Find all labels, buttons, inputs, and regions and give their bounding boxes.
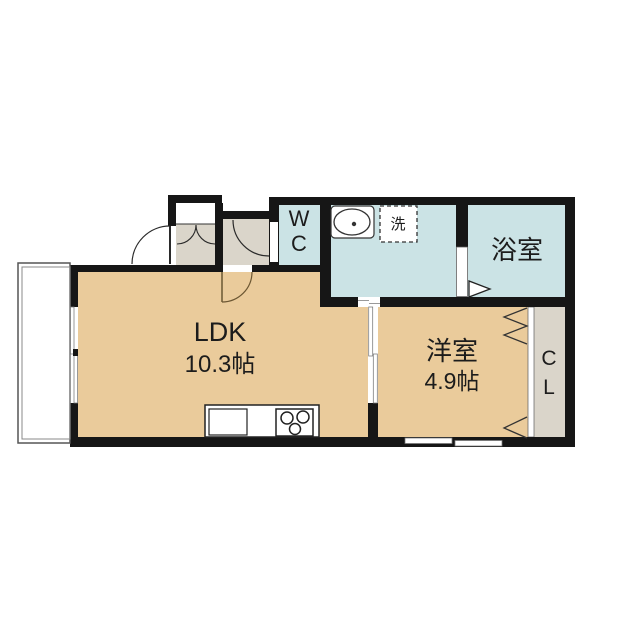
balcony-inner-line xyxy=(22,267,70,439)
wall-segment xyxy=(269,197,575,205)
closet-door-track xyxy=(528,307,534,437)
window-panel xyxy=(455,441,502,447)
ldk-label: LDK xyxy=(194,317,247,347)
stove-burner-icon xyxy=(281,412,293,424)
sliding-door-panel xyxy=(373,354,377,403)
entry-hall-floor xyxy=(223,219,269,265)
wc-label-line1: W xyxy=(289,206,310,231)
stove-burner-icon xyxy=(290,424,301,435)
floor-plan-drawing: LDK 10.3帖 洋室 4.9帖 浴室 W C C L 洗 xyxy=(0,0,640,640)
wc-door xyxy=(270,222,278,262)
window-panel xyxy=(74,352,78,403)
sliding-door-panel xyxy=(369,307,373,356)
front-door-arc xyxy=(132,226,170,264)
wall-segment xyxy=(565,197,575,447)
wall-segment xyxy=(168,195,222,203)
wall-segment xyxy=(215,203,223,266)
closet-label-line1: C xyxy=(541,347,556,370)
window-panel xyxy=(405,438,452,444)
washroom-door xyxy=(358,297,380,307)
bath-door-strip xyxy=(457,247,468,297)
laundry-label: 洗 xyxy=(390,216,405,233)
closet-floor xyxy=(534,307,565,437)
kitchen-sink-icon xyxy=(209,409,247,435)
wall-segment xyxy=(456,197,468,247)
closet-label-line2: L xyxy=(543,376,555,399)
wc-label-line2: C xyxy=(291,231,307,256)
wall-segment xyxy=(168,195,176,226)
bath-label: 浴室 xyxy=(491,235,543,265)
floor-plan: LDK 10.3帖 洋室 4.9帖 浴室 W C C L 洗 xyxy=(0,0,640,640)
western-room-label: 洋室 xyxy=(426,336,478,366)
sink-icon xyxy=(334,209,370,235)
wall-segment xyxy=(222,211,269,219)
sink-drain-icon xyxy=(352,222,356,226)
wall-segment xyxy=(320,197,331,307)
entry-ldk-opening xyxy=(223,265,252,272)
window-panel xyxy=(70,307,74,354)
window-latch xyxy=(73,349,78,356)
wall-segment xyxy=(70,265,331,272)
stove-burner-icon xyxy=(297,411,309,423)
western-room-area-label: 4.9帖 xyxy=(425,368,480,394)
ldk-area-label: 10.3帖 xyxy=(185,351,256,378)
shoe-cabinet-recess xyxy=(176,203,215,224)
balcony-outline xyxy=(18,263,70,443)
